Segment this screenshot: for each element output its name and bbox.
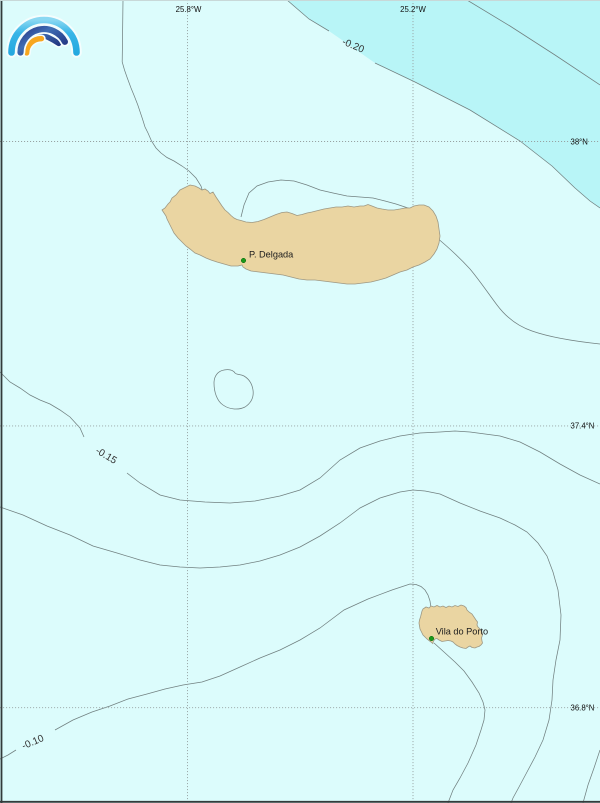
svg-text:25.8°W: 25.8°W [176, 5, 202, 14]
svg-text:P. Delgada: P. Delgada [249, 250, 294, 260]
svg-text:38°N: 38°N [571, 137, 588, 146]
svg-text:36.8°N: 36.8°N [571, 704, 595, 713]
svg-text:37.4°N: 37.4°N [571, 422, 595, 431]
svg-text:25.2°W: 25.2°W [400, 5, 426, 14]
svg-text:Vila do Porto: Vila do Porto [436, 626, 488, 636]
